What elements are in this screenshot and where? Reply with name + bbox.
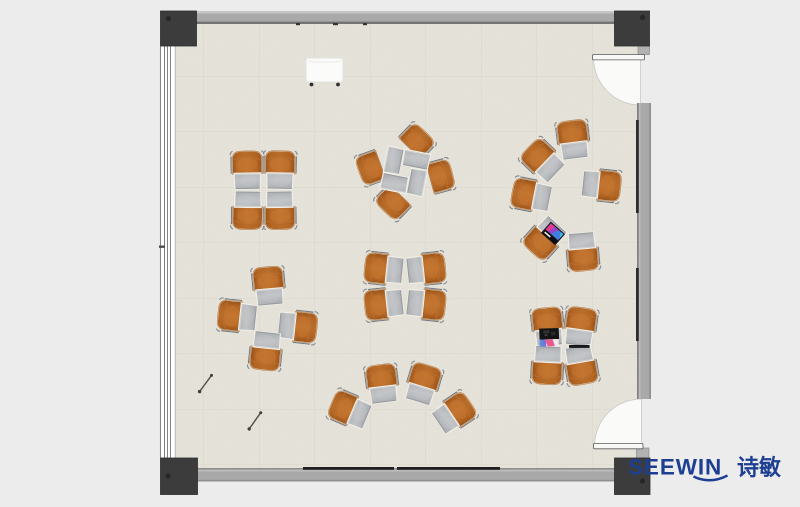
svg-text:SEEWIN: SEEWIN bbox=[628, 455, 722, 480]
svg-text:诗敏: 诗敏 bbox=[737, 455, 781, 480]
